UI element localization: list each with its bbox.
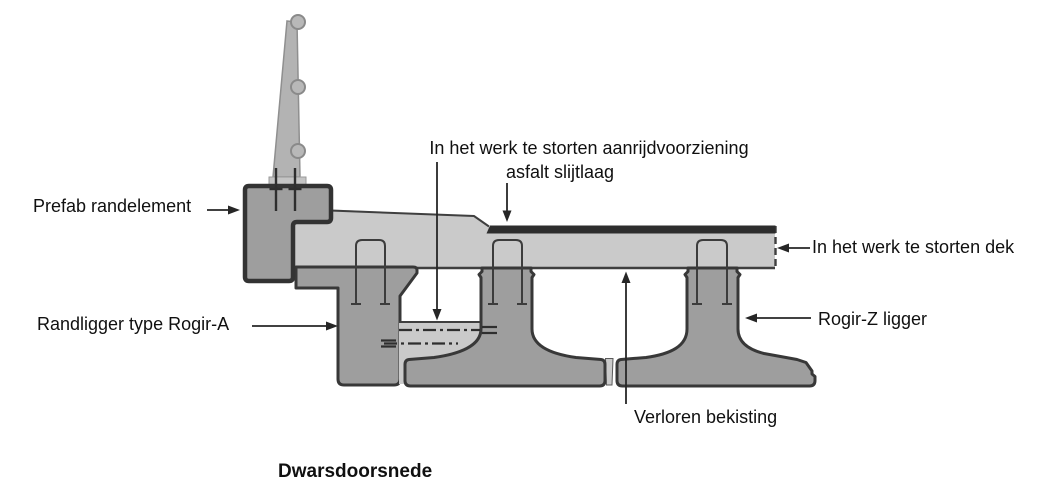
arrowhead-left-icon: [745, 314, 757, 323]
label-aanrijdvoorziening-line2: asfalt slijtlaag: [506, 162, 614, 182]
arrowhead-right-icon: [326, 322, 338, 331]
deck-slab: [293, 210, 776, 269]
label-randligger-rogir-a: Randligger type Rogir-A: [37, 314, 229, 334]
arrowhead-right-icon: [228, 206, 240, 215]
label-verloren-bekisting: Verloren bekisting: [634, 407, 777, 427]
diagram-canvas: Prefab randelement In het werk te storte…: [0, 0, 1041, 495]
guardrail-post: [269, 15, 306, 186]
deck-slab-shape: [293, 210, 775, 268]
label-in-het-werk-dek: In het werk te storten dek: [812, 237, 1015, 257]
label-aanrijdvoorziening-line1: In het werk te storten aanrijdvoorzienin…: [429, 138, 748, 158]
arrowhead-left-icon: [777, 244, 789, 253]
railing-bolt-icon: [291, 80, 305, 94]
arrowhead-down-icon: [433, 309, 442, 321]
cross-section-diagram: Prefab randelement In het werk te storte…: [0, 0, 1041, 495]
diagram-caption: Dwarsdoorsnede: [278, 461, 432, 482]
rogir-z-girder-2-shape: [617, 268, 815, 386]
label-prefab-randelement: Prefab randelement: [33, 196, 191, 216]
label-rogir-z-ligger: Rogir-Z ligger: [818, 309, 927, 329]
asphalt-layer: [487, 226, 776, 234]
arrowhead-down-icon: [503, 211, 512, 223]
railing-bolt-icon: [291, 144, 305, 158]
verloren-bekisting-strip: [606, 359, 614, 386]
railing-bolt-icon: [291, 15, 305, 29]
arrowhead-up-icon: [622, 272, 631, 284]
